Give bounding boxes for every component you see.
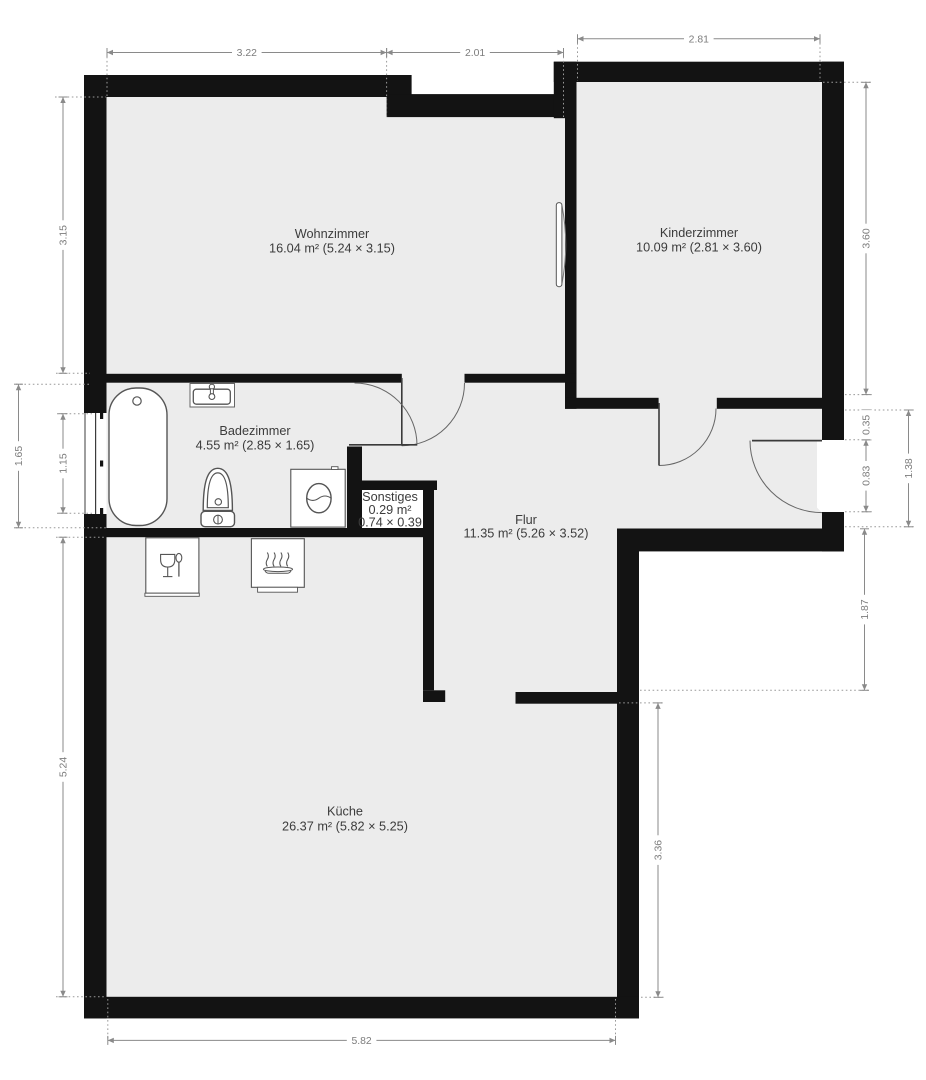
svg-text:0.83: 0.83 xyxy=(862,465,873,485)
svg-text:Kinderzimmer: Kinderzimmer xyxy=(660,226,739,240)
svg-text:4.55 m² (2.85 × 1.65): 4.55 m² (2.85 × 1.65) xyxy=(196,438,315,452)
svg-text:1.38: 1.38 xyxy=(904,458,915,478)
svg-text:11.35 m² (5.26 × 3.52): 11.35 m² (5.26 × 3.52) xyxy=(464,526,589,540)
svg-text:2.81: 2.81 xyxy=(689,34,709,45)
svg-text:2.01: 2.01 xyxy=(465,48,485,59)
svg-text:10.09 m² (2.81 × 3.60): 10.09 m² (2.81 × 3.60) xyxy=(636,240,762,254)
svg-text:Wohnzimmer: Wohnzimmer xyxy=(295,227,370,241)
svg-text:3.60: 3.60 xyxy=(862,228,873,248)
svg-text:0.35: 0.35 xyxy=(862,415,873,435)
svg-text:3.36: 3.36 xyxy=(654,840,665,860)
svg-text:1.15: 1.15 xyxy=(59,453,70,473)
svg-text:1.65: 1.65 xyxy=(14,446,25,466)
svg-text:3.15: 3.15 xyxy=(59,225,70,245)
svg-text:5.82: 5.82 xyxy=(351,1036,371,1047)
svg-text:1.87: 1.87 xyxy=(860,599,871,619)
svg-text:Sonstiges: Sonstiges xyxy=(362,490,418,504)
svg-text:0.74 × 0.39: 0.74 × 0.39 xyxy=(358,515,422,529)
svg-text:3.22: 3.22 xyxy=(237,48,257,59)
svg-text:26.37 m² (5.82 × 5.25): 26.37 m² (5.82 × 5.25) xyxy=(282,820,408,834)
svg-text:Küche: Küche xyxy=(327,805,363,819)
svg-text:16.04 m² (5.24 × 3.15): 16.04 m² (5.24 × 3.15) xyxy=(269,241,395,255)
svg-text:5.24: 5.24 xyxy=(59,757,70,777)
svg-text:Badezimmer: Badezimmer xyxy=(219,424,291,438)
svg-text:Flur: Flur xyxy=(515,513,538,527)
